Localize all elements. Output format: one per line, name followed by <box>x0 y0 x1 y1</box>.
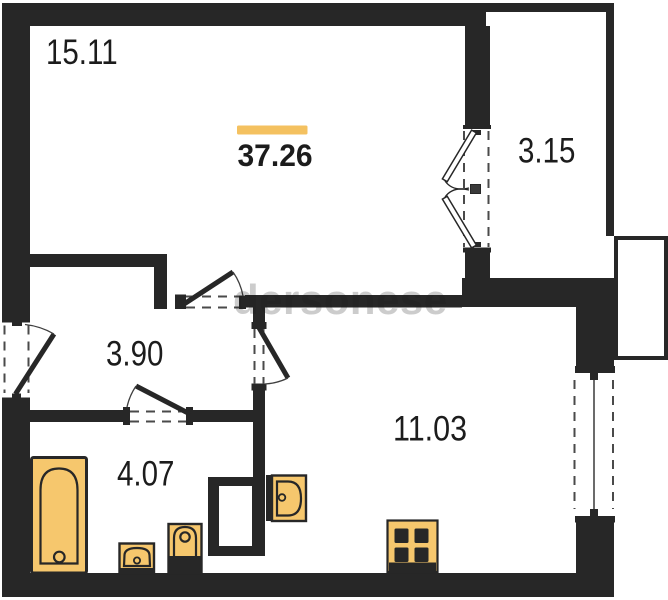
svg-text:4.07: 4.07 <box>117 454 174 493</box>
svg-text:37.26: 37.26 <box>238 137 313 173</box>
svg-text:3.90: 3.90 <box>106 334 163 373</box>
svg-text:15.11: 15.11 <box>46 33 118 72</box>
svg-text:3.15: 3.15 <box>518 131 575 170</box>
svg-text:dersonese: dersonese <box>233 276 448 323</box>
svg-text:11.03: 11.03 <box>393 409 467 448</box>
